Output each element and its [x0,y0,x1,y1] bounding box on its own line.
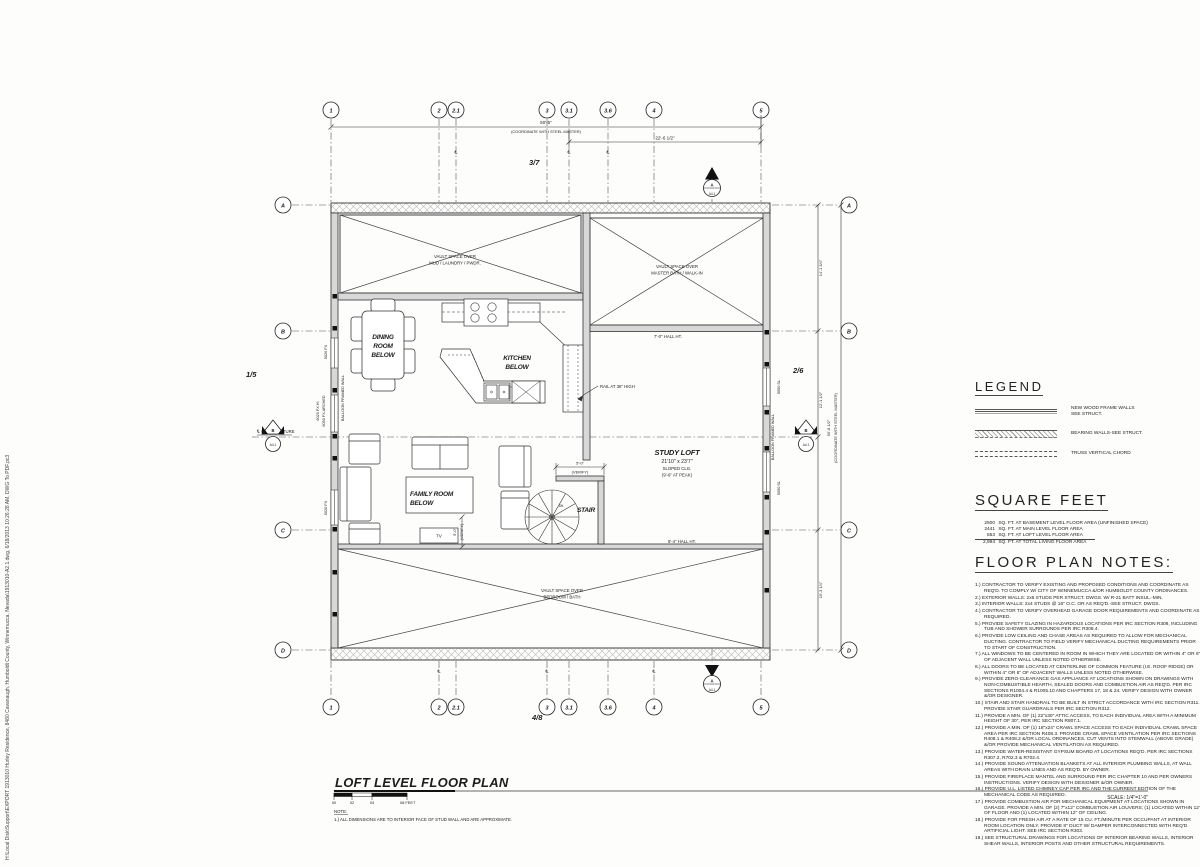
note-item: 10.) STAIR AND STAIR HANDRAIL TO BE BUIL… [975,701,1200,712]
dim-right-cd: 10'-3 1/4" [818,581,823,598]
legend-item: BEARING WALLS-SEE STRUCT. [975,430,1200,438]
note-item: 3.) INTERIOR WALLS: 2x4 STUDS @ 16" O.C.… [975,602,1200,608]
sqft-value: 2,994 [975,540,995,546]
note-item: 19.) SEE STRUCTURAL DRAWINGS FOR LOCATIO… [975,836,1200,847]
legend-heading: LEGEND [975,379,1043,396]
square-feet-total-row: 2,994 SQ. FT. AT TOTAL LIVING FLOOR AREA [975,540,1200,546]
centerline-symbol: ℄ [454,150,458,155]
floor-plan-notes-panel: FLOOR PLAN NOTES: 1.) CONTRACTOR TO VERI… [975,554,1200,849]
note-item: 8.) ALL DOORS TO BE LOCATED AT CENTERLIN… [975,665,1200,676]
grid-bubble-label: 2 [436,109,440,115]
label-dining: DINING [372,334,394,341]
centerline-symbol: ℄ [567,150,571,155]
wall-tag-6050fx: 6050 FX ARCHED [322,395,326,426]
family-furniture [340,434,531,544]
section-marker-bottom: A A4.1 [704,665,721,693]
dim-stair-verify: (VERIFY) [572,470,589,475]
dim-right-total: 50'-8 1/2" [826,419,831,436]
truss-chord-symbol [975,451,1057,457]
note-item: 17.) PROVIDE COMBUSTION AIR FOR MECHANIC… [975,800,1200,817]
wall-tag-5050sl-lower: 5050 SL [777,481,781,495]
grid-bubble-label: 4 [651,109,655,115]
scale-bar-label: 02 [350,800,354,805]
label-vault-master: MASTER BATH / WALK-IN [651,271,703,276]
grid-bubble-label: 3.1 [565,109,573,115]
grid-row-label: A [846,204,851,210]
grid-bubble-label: 1 [329,109,332,115]
label-rail: RAIL AT 36" HIGH [600,384,635,389]
wood-frame-wall-symbol [975,409,1057,414]
label-tv: TV [436,534,442,539]
section-marker-sheet: A4.1 [270,443,277,447]
note-heading: NOTE: [334,809,347,814]
centerline-symbol: ℄ [606,150,610,155]
bearing-wall-symbol [975,430,1057,438]
sheet-title: LOFT LEVEL FLOOR PLAN [335,775,509,790]
section-marker-left: B A4.1 [262,420,284,452]
note-text: 1.) ALL DIMENSIONS ARE TO INTERIOR FACE … [334,817,512,822]
label-study-loft: STUDY LOFT [655,448,702,457]
scale-bar-label: 00 [332,800,337,805]
label-dn: DN [559,504,564,508]
section-marker-top: A A4.1 [704,167,721,197]
scale-bar-label: 08 FEET [400,800,416,805]
dim-top-total: 50'-5" [540,120,552,125]
section-marker-letter: B [271,428,274,433]
section-marker-sheet: A4.1 [709,192,716,196]
dim-right-bc: 12'-1 1/2" [818,391,823,408]
wall-tag-5020fx-lower: 5020 FX [324,500,328,515]
notes-heading: FLOOR PLAN NOTES: [975,554,1173,573]
label-hall-height-7: 7'-0" HALL HT. [654,334,682,339]
ref-left: 1/5 [246,370,257,379]
dim-stair-width: 5'-0" [576,461,584,466]
legend-item-label: NEW WOOD FRAME WALLS SEE STRUCT. [1071,406,1135,417]
label-stair: STAIR [577,507,596,514]
grid-bubble-label: 1 [329,706,332,712]
note-item: 12.) PROVIDE A MIN. OF (1) 18"x24" CRAWL… [975,726,1200,749]
section-marker-right: B A4.1 [795,420,817,452]
dim-top-partial: 22'-6 1/2" [655,136,675,141]
section-marker-sheet: A4.1 [709,688,716,692]
grid-bubble-label: 3.6 [604,109,613,115]
label-study-peak: (9'-6" AT PEAK) [662,473,693,478]
label-study-size: 21'10" x 23'7" [661,459,692,465]
label-kitchen: BELOW [505,364,529,371]
legend-item: TRUSS VERTICAL CHORD [975,451,1200,457]
section-marker-letter: A [710,679,713,684]
label-dining: ROOM [373,343,393,350]
note-item: 4.) CONTRACTOR TO VERIFY OVERHEAD GARAGE… [975,609,1200,620]
section-marker-letter: B [804,428,807,433]
wall-tag-balloon-right: BALLOON FRAMED WALL [771,414,775,460]
grid-row-label: A [280,204,285,210]
sqft-text: SQ. FT. AT LOFT LEVEL FLOOR AREA [998,533,1083,538]
centerline-symbol: ℄ [652,669,656,674]
label-dining: BELOW [371,352,395,359]
grid-row-label: D [847,649,851,655]
dim-right-steel-note: (COORDINATE WITH STEEL MASTER) [833,392,838,463]
grid-row-label: B [281,330,285,336]
label-vault-mud: VAULT SPACE OVER [434,254,476,259]
label-kitchen: KITCHEN [503,355,531,362]
note-item: 11.) PROVIDE A MIN. OF (1) 22"x30" ATTIC… [975,714,1200,725]
section-marker-letter: A [710,183,713,188]
note-item: 2.) EXTERIOR WALLS: 2x6 STUDS PER STRUCT… [975,596,1200,602]
ref-bottom: 4/8 [531,713,543,722]
legend-item: NEW WOOD FRAME WALLS SEE STRUCT. [975,406,1200,417]
legend-panel: LEGEND NEW WOOD FRAME WALLS SEE STRUCT. … [975,378,1200,470]
dim-right-ab: 14'-1 3/4" [818,259,823,276]
label-study-clg: SLOPED CLG. [663,466,692,471]
note-item: 14.) PROVIDE SOUND ATTENUATION BLANKETS … [975,762,1200,773]
note-item: 5.) PROVIDE SAFETY GLAZING IN HAZARDOUS … [975,622,1200,633]
sqft-text: SQ. FT. AT MAIN LEVEL FLOOR AREA [998,527,1082,532]
dim-steel-note: (COORDINATE WITH STEEL MASTER) [511,129,582,134]
grid-bubble-label: 2 [436,706,440,712]
grid-bubble-label: 3 [545,706,548,712]
ref-right: 2/6 [792,366,804,375]
spiral-stair [525,490,579,544]
wall-tag-balloon-left: BALLOON FRAMED WALL [341,375,345,421]
grid-bubble-label: 2.1 [451,706,460,712]
grid-bubble-label: 4 [651,706,655,712]
notes-list: 1.) CONTRACTOR TO VERIFY EXISTING AND PR… [975,583,1200,848]
scale-bar [334,793,407,800]
sqft-value: 553 [975,533,995,539]
note-item: 1.) CONTRACTOR TO VERIFY EXISTING AND PR… [975,583,1200,594]
legend-line: SEE STRUCT. [1071,412,1135,418]
note-item: 18.) PROVIDE FOR FRESH AIR AT A RATE OF … [975,818,1200,835]
centerline-symbol: ℄ [437,669,441,674]
label-family: BELOW [410,500,434,507]
label-vault-bedroom: BEDROOM / BATH [544,595,581,600]
grid-bubble-label: 3.1 [565,706,573,712]
label-vault-master: VAULT SPACE OVER [656,264,698,269]
label-family: FAMILY ROOM [410,491,454,498]
note-item: 7.) ALL WINDOWS TO BE CENTERED IN ROOM I… [975,652,1200,663]
drawing-sheet: { "drawing": { "title": "LOFT LEVEL FLOO… [0,0,1200,867]
dim-stair-depth: 5'-0" [452,528,457,536]
square-feet-heading: SQUARE FEET [975,492,1108,511]
note-item: 13.) PROVIDE WATER-RESISTANT GYPSUM BOAR… [975,750,1200,761]
legend-item-label: BEARING WALLS-SEE STRUCT. [1071,431,1143,437]
label-vault-bedroom: VAULT SPACE OVER [541,588,583,593]
label-vault-mud: MUD / LAUNDRY / PWDR. [429,261,481,266]
square-feet-panel: SQUARE FEET 2500 SQ. FT. AT BASEMENT LEV… [975,492,1200,546]
ref-top: 3/7 [529,158,540,167]
centerline-symbol: ℄ [545,669,549,674]
sqft-text: SQ. FT. AT TOTAL LIVING FLOOR AREA [998,540,1086,545]
note-item: 6.) PROVIDE LOW CEILING AND CHASE AREAS … [975,634,1200,651]
dim-stair-depth-verify: (VERIFY) [459,523,464,540]
wall-tag-5050sl-upper: 5050 SL [777,380,781,394]
wall-tag-6020fx: 6020 FX HI [316,401,320,420]
grid-bubble-label: 3.6 [604,706,613,712]
scale-bar-label: 04 [370,800,375,805]
plot-file-path: H:\Local Disk\Support\EXPORT 1913010 Hur… [5,455,11,860]
interior-walls [338,213,763,549]
wall-tag-5020fx-upper: 5020 FX [324,344,328,359]
grid-bubble-label: 2.1 [451,109,460,115]
label-hall-height-84: 8'-4" HALL HT. [668,539,696,544]
legend-line: NEW WOOD FRAME WALLS [1071,406,1135,412]
grid-row-label: D [281,649,285,655]
note-item: 16.) PROVIDE U.L. LISTED CHIMNEY CAP PER… [975,787,1200,798]
note-item: 15.) PROVIDE FIREPLACE MANTEL AND SURROU… [975,775,1200,786]
section-marker-sheet: A4.1 [803,443,810,447]
grid-row-label: B [847,330,851,336]
grid-bubble-label: 3 [545,109,548,115]
legend-item-label: TRUSS VERTICAL CHORD [1071,451,1131,457]
sqft-text: SQ. FT. AT BASEMENT LEVEL FLOOR AREA (UN… [998,521,1148,526]
note-item: 9.) PROVIDE ZERO-CLEARANCE GAS APPLIANCE… [975,677,1200,700]
